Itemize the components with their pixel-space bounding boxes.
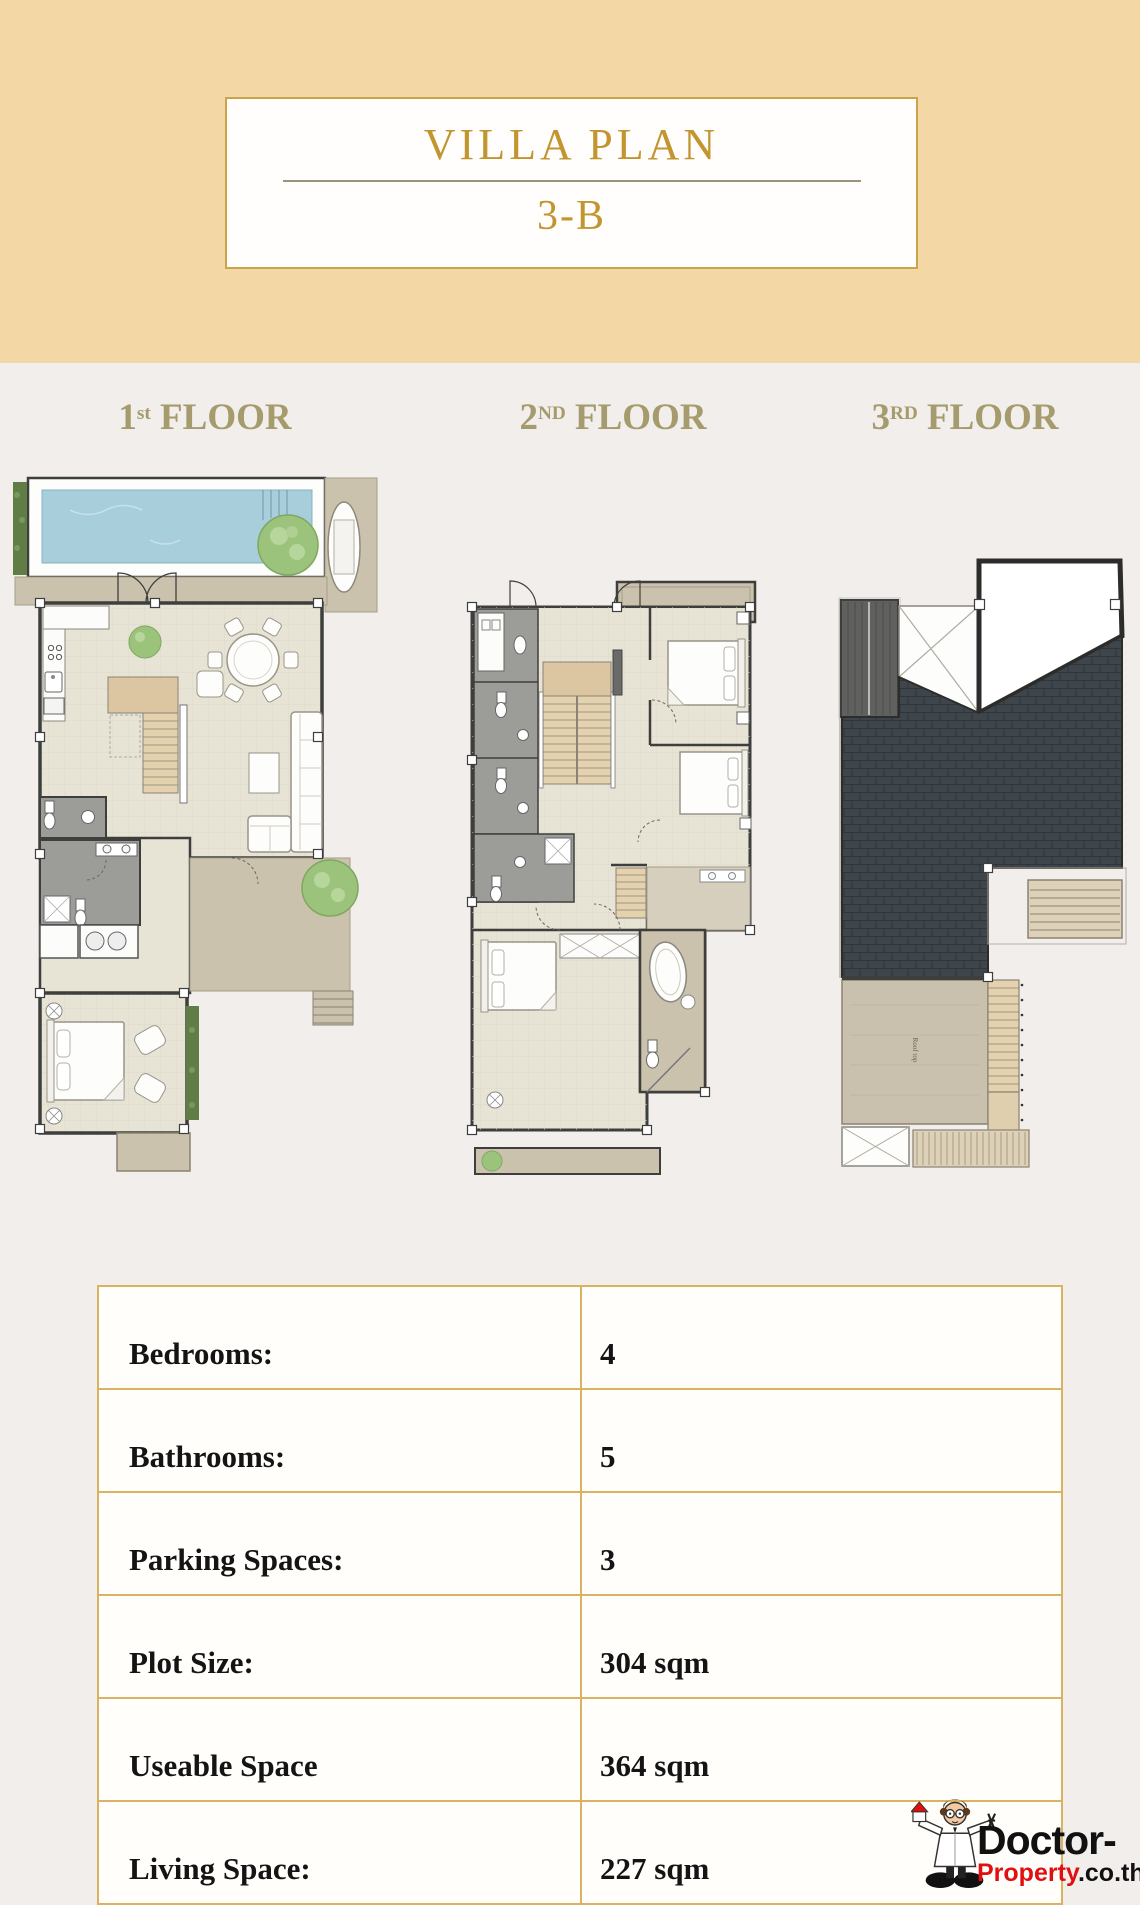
floor-2-label: 2ND FLOOR xyxy=(519,396,706,439)
floor-3-label: 3RD FLOOR xyxy=(871,396,1058,439)
spec-row: Useable Space364 sqm xyxy=(98,1698,1062,1801)
logo-text-property: Property.co.th xyxy=(977,1861,1140,1886)
armchair xyxy=(197,671,223,697)
master-bathroom xyxy=(640,930,705,1092)
spec-label: Bathrooms: xyxy=(98,1389,581,1492)
garden-steps xyxy=(313,991,353,1025)
tree-leaf xyxy=(135,632,145,642)
skylight-panel xyxy=(842,1127,909,1166)
rooftop-label: Roof top xyxy=(911,1038,919,1063)
plan-code: 3-B xyxy=(227,192,916,240)
title-divider xyxy=(283,180,861,182)
lower-balcony xyxy=(475,1148,660,1174)
solar-panel xyxy=(839,598,900,719)
spec-label: Bedrooms: xyxy=(98,1286,581,1389)
spec-label: Plot Size: xyxy=(98,1595,581,1698)
bed xyxy=(47,1020,124,1102)
coffee-table xyxy=(249,753,279,793)
watermark-logo: Doctor- Property.co.th xyxy=(905,1788,1140,1900)
spec-row: Plot Size:304 sqm xyxy=(98,1595,1062,1698)
spec-row: Bedrooms:4 xyxy=(98,1286,1062,1389)
page-title: VILLA PLAN xyxy=(227,119,916,170)
floor-1-label: 1st FLOOR xyxy=(118,396,291,439)
spec-label: Useable Space xyxy=(98,1698,581,1801)
bathroom xyxy=(40,840,140,926)
slatted-deck xyxy=(913,1130,1029,1167)
spec-value: 304 sqm xyxy=(581,1595,1062,1698)
bedroom-terrace xyxy=(117,1133,190,1171)
plant-icon xyxy=(482,1151,502,1171)
spec-label: Parking Spaces: xyxy=(98,1492,581,1595)
spec-row: Parking Spaces:3 xyxy=(98,1492,1062,1595)
title-box: VILLA PLAN 3-B xyxy=(225,97,918,269)
spec-value: 3 xyxy=(581,1492,1062,1595)
floor-plan-3: Roof top xyxy=(820,530,1140,1180)
floor-plan-1 xyxy=(0,460,380,1180)
spec-value: 5 xyxy=(581,1389,1062,1492)
tree-icon xyxy=(258,515,318,575)
logo-text-doctor: Doctor- xyxy=(977,1820,1140,1861)
upper-stair xyxy=(616,868,646,918)
patio xyxy=(190,858,358,1025)
bedroom xyxy=(40,993,187,1133)
spec-row: Bathrooms:5 xyxy=(98,1389,1062,1492)
floor-plan-2 xyxy=(440,560,780,1180)
tree-icon xyxy=(302,860,358,916)
header-band: VILLA PLAN 3-B xyxy=(0,0,1140,363)
spec-value: 364 sqm xyxy=(581,1698,1062,1801)
toilet xyxy=(647,1052,659,1068)
laundry xyxy=(40,925,138,958)
wardrobe xyxy=(560,934,640,958)
tree-icon xyxy=(129,626,161,658)
spec-label: Living Space: xyxy=(98,1801,581,1904)
villa-plan-sheet: VILLA PLAN 3-B 1st FLOOR 2ND FLOOR 3RD F… xyxy=(0,0,1140,1905)
vanity xyxy=(700,870,745,882)
roof-vent xyxy=(988,868,1126,944)
powder-room xyxy=(40,797,106,838)
staircase xyxy=(539,662,615,788)
spec-value: 4 xyxy=(581,1286,1062,1389)
terrace-stairs xyxy=(988,980,1023,1134)
roof-terrace: Roof top xyxy=(842,976,988,1124)
